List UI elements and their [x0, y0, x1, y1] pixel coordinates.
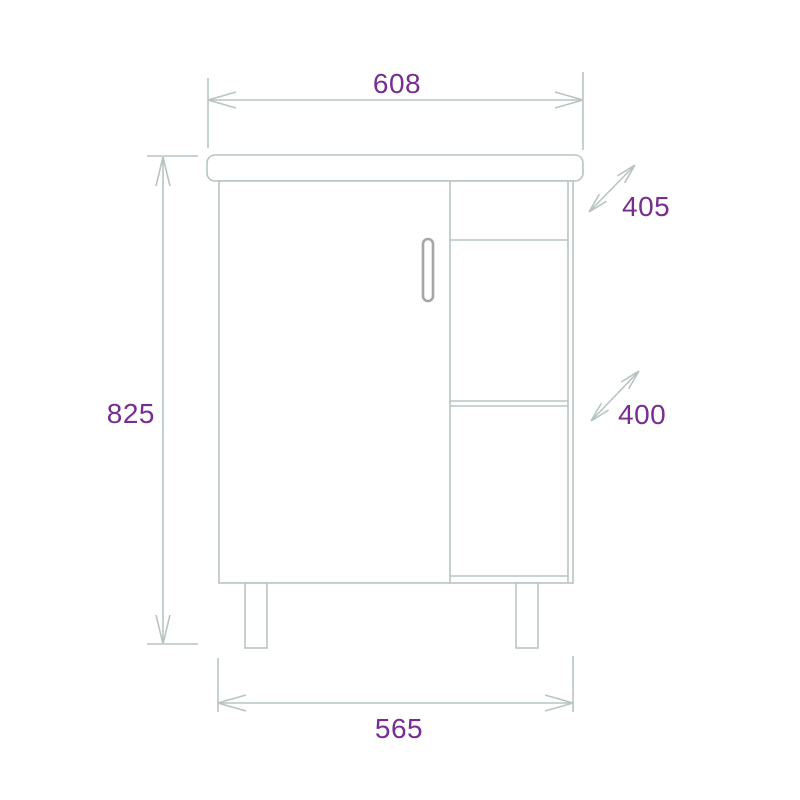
dimension-top-width: 608	[208, 68, 583, 150]
cabinet-countertop	[207, 155, 583, 181]
vanity-cabinet-technical-drawing: 608 825 405 400	[0, 0, 800, 800]
cabinet	[207, 155, 583, 648]
cabinet-body	[219, 181, 573, 583]
dimension-bottom-width: 565	[218, 656, 573, 744]
dimension-overall-height: 825	[107, 156, 198, 644]
dimension-upper-depth: 405	[589, 165, 670, 222]
dimension-label-overall-height: 825	[107, 398, 155, 429]
dimension-label-bottom-width: 565	[375, 713, 423, 744]
leg-left	[245, 583, 267, 648]
door-handle	[423, 239, 433, 301]
dimension-lower-depth: 400	[591, 371, 666, 430]
dimension-label-lower-depth: 400	[618, 399, 666, 430]
drawing-canvas: 608 825 405 400	[0, 0, 800, 800]
dimension-label-upper-depth: 405	[622, 191, 670, 222]
dimension-label-top-width: 608	[373, 68, 421, 99]
leg-right	[516, 583, 538, 648]
